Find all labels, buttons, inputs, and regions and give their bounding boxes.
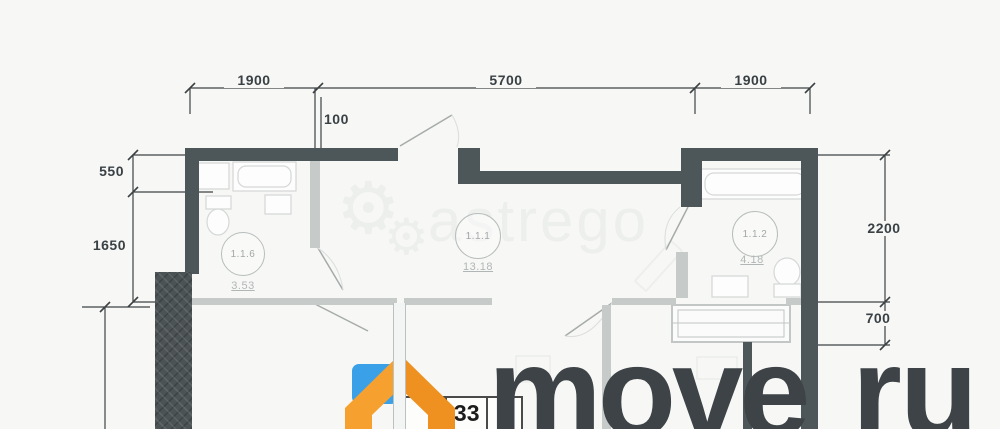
room-number-1-1-6: 1.1.6	[221, 232, 265, 276]
dim-top-1: 1900	[224, 73, 284, 88]
partition-center-over-logo	[393, 303, 406, 429]
dim-top-2: 5700	[476, 73, 536, 88]
dim-left-550: 550	[84, 164, 124, 179]
brand-text-move: move	[488, 329, 806, 429]
partition-bathroom	[310, 161, 320, 248]
room-area-1-1-2: 4.18	[726, 254, 778, 266]
partition-right-room	[676, 252, 688, 298]
room-number-1-1-1: 1.1.1	[455, 213, 501, 259]
room-area-1-1-1: 13.18	[452, 261, 504, 273]
dim-wall-100: 100	[324, 112, 362, 127]
partition-main-a	[192, 298, 397, 305]
wall-left	[185, 148, 199, 274]
dim-right-2200: 2200	[858, 221, 910, 236]
dim-left-1650: 1650	[80, 238, 126, 253]
wall-step-block	[681, 148, 702, 207]
wall-top-left	[185, 148, 398, 161]
wall-top-recessed	[478, 171, 683, 184]
floor-plan-image: ⚙ ⚙ astrego	[0, 0, 1000, 429]
partition-main-b	[404, 298, 492, 305]
room-number-1-1-2: 1.1.2	[732, 211, 778, 257]
brand-text-ru: ru	[852, 329, 976, 429]
wall-corner-block	[458, 148, 480, 184]
wall-top-right	[700, 148, 816, 161]
room-area-1-1-6: 3.53	[217, 280, 269, 292]
partition-main-c	[612, 298, 676, 305]
dim-top-3: 1900	[721, 73, 781, 88]
partition-main-d	[786, 298, 801, 305]
wall-left-lower-hatched	[155, 272, 192, 429]
